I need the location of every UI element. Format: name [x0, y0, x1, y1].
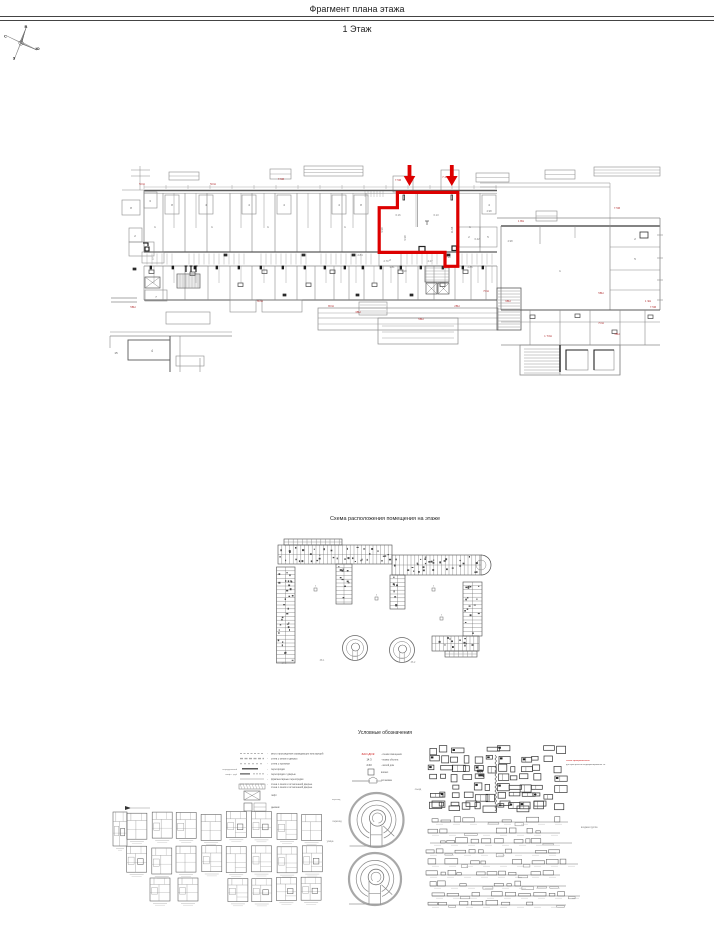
svg-text:- номер объекта: - номер объекта	[381, 760, 399, 762]
svg-text:1ВН: 1ВН	[614, 332, 619, 336]
svg-text:36.2: 36.2	[411, 661, 416, 664]
svg-text:9.98: 9.98	[403, 235, 407, 241]
svg-text:стена с проемом: стена с проемом	[271, 763, 290, 766]
svg-text:3.81: 3.81	[389, 265, 395, 269]
svg-text:вокзал: вокзал	[381, 772, 389, 774]
svg-text:7.5М: 7.5М	[650, 305, 657, 309]
svg-text:7.5М: 7.5М	[614, 206, 621, 210]
svg-text:В: В	[25, 24, 28, 29]
svg-text:2ВН: 2ВН	[454, 304, 459, 308]
svg-text:7ОН: 7ОН	[598, 321, 604, 325]
svg-text:съезд: съезд	[415, 788, 422, 791]
svg-text:6.42: 6.42	[474, 237, 480, 241]
svg-text:для пространств кондиционирова: для пространств кондиционирования т.п.	[566, 764, 606, 766]
svg-text:4: 4	[151, 349, 153, 353]
svg-text:- схема помещения: - схема помещения	[381, 754, 403, 756]
svg-text:15: 15	[114, 351, 118, 355]
svg-text:фрагментарные перегородки: фрагментарные перегородки	[271, 778, 304, 781]
svg-text:2.63: 2.63	[366, 763, 372, 767]
svg-text:переход: переход	[332, 820, 342, 823]
svg-text:улица: улица	[327, 840, 334, 843]
svg-text:2.84: 2.84	[357, 253, 363, 257]
svg-text:стена с окном и дверью: стена с окном и дверью	[271, 758, 298, 761]
svg-text:5ОН: 5ОН	[210, 182, 216, 186]
svg-text:переход: переход	[332, 799, 341, 801]
svg-text:37.8: 37.8	[282, 662, 287, 665]
svg-text:- жилой дом: - жилой дом	[381, 764, 394, 767]
svg-text:Схема расположения помещения н: Схема расположения помещения на этаже	[330, 516, 440, 522]
svg-text:4.27: 4.27	[427, 259, 433, 263]
svg-text:остановка: остановка	[381, 780, 393, 782]
svg-text:11.98: 11.98	[450, 226, 454, 233]
svg-text:2.70: 2.70	[383, 259, 389, 263]
svg-text:Ю: Ю	[35, 46, 39, 51]
svg-text:МФЦ: МФЦ	[478, 774, 483, 777]
svg-text:1 ЭН: 1 ЭН	[645, 299, 651, 303]
svg-text:перегородки с дверью: перегородки с дверью	[271, 773, 296, 776]
svg-text:5ОН: 5ОН	[139, 182, 145, 186]
svg-text:38.1: 38.1	[320, 659, 325, 662]
svg-text:4.98: 4.98	[486, 209, 492, 213]
svg-text:дымник: дымник	[271, 806, 280, 809]
svg-text:5ВН: 5ВН	[418, 317, 423, 321]
svg-text:1 ТЗН: 1 ТЗН	[544, 334, 552, 338]
svg-text:Условные обозначения: Условные обозначения	[358, 730, 412, 736]
svg-text:7.5М: 7.5М	[395, 178, 402, 182]
svg-text:5ВН: 5ВН	[598, 291, 603, 295]
svg-text:стена с окном и остекленной дв: стена с окном и остекленной дверью	[271, 786, 312, 789]
svg-text:шкаф + труб: шкаф + труб	[225, 773, 238, 776]
svg-text:4.98: 4.98	[507, 239, 513, 243]
svg-text:4.18: 4.18	[401, 269, 407, 273]
svg-text:перегородки: перегородки	[271, 768, 285, 771]
svg-text:3ВН: 3ВН	[355, 310, 360, 314]
svg-text:входная группа: входная группа	[581, 827, 598, 829]
svg-text:7ОН: 7ОН	[483, 289, 489, 293]
svg-text:лифт: лифт	[271, 794, 278, 797]
svg-text:8ОН: 8ОН	[328, 304, 334, 308]
svg-text:1 Этаж: 1 Этаж	[342, 24, 371, 34]
svg-text:1 ВН: 1 ВН	[518, 219, 524, 223]
svg-text:7.5М: 7.5М	[278, 177, 285, 181]
svg-text:14.3: 14.3	[366, 758, 372, 762]
svg-text:6.13: 6.13	[433, 213, 439, 217]
svg-text:непродуваемый: непродуваемый	[222, 768, 237, 771]
svg-text:5ВН: 5ВН	[130, 305, 135, 309]
svg-text:схема принципиальная: схема принципиальная	[566, 760, 590, 762]
svg-text:9ВН: 9ВН	[505, 299, 510, 303]
svg-text:6.16: 6.16	[395, 213, 401, 217]
svg-text:2.86: 2.86	[467, 265, 473, 269]
svg-text:С: С	[4, 34, 7, 39]
svg-text:место прохождения ограждающих: место прохождения ограждающих конструкци…	[271, 753, 324, 756]
svg-text:ЗАГС: ЗАГС	[477, 770, 483, 773]
svg-text:6ОН: 6ОН	[257, 299, 263, 303]
svg-text:Фрагмент плана этажа: Фрагмент плана этажа	[310, 4, 405, 14]
svg-text:ЗАО.ДОК: ЗАО.ДОК	[361, 752, 374, 756]
